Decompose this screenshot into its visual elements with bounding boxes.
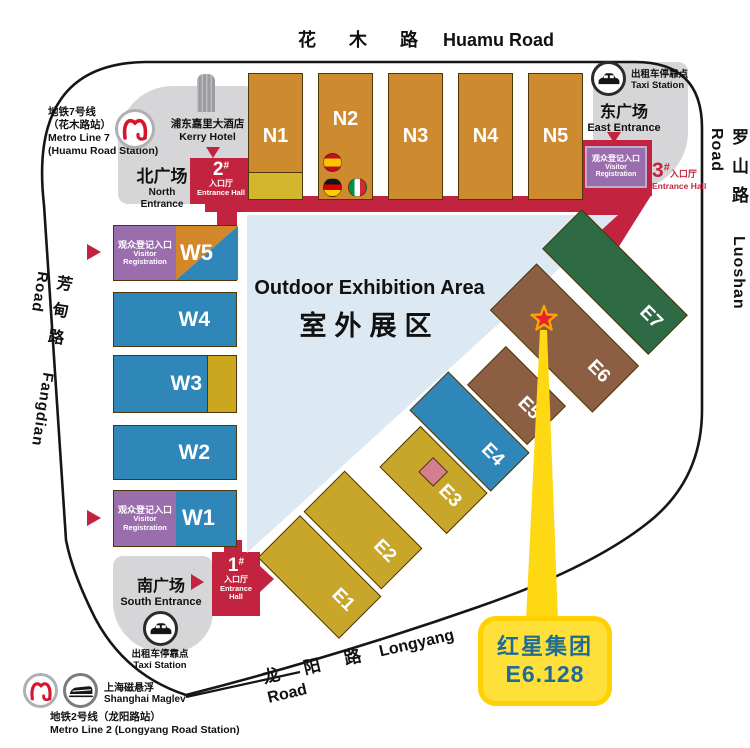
exhibition-center-map: 2# 入口厅 Entrance Hall 1# 入口厅 Entrance Hal… — [0, 0, 750, 748]
booth-star-icon — [527, 302, 561, 336]
booth-pointer-stem — [0, 0, 750, 748]
booth-company-name: 红星集团 — [497, 633, 593, 661]
booth-callout: 红星集团 E6.128 — [478, 616, 612, 706]
booth-number: E6.128 — [506, 660, 585, 689]
